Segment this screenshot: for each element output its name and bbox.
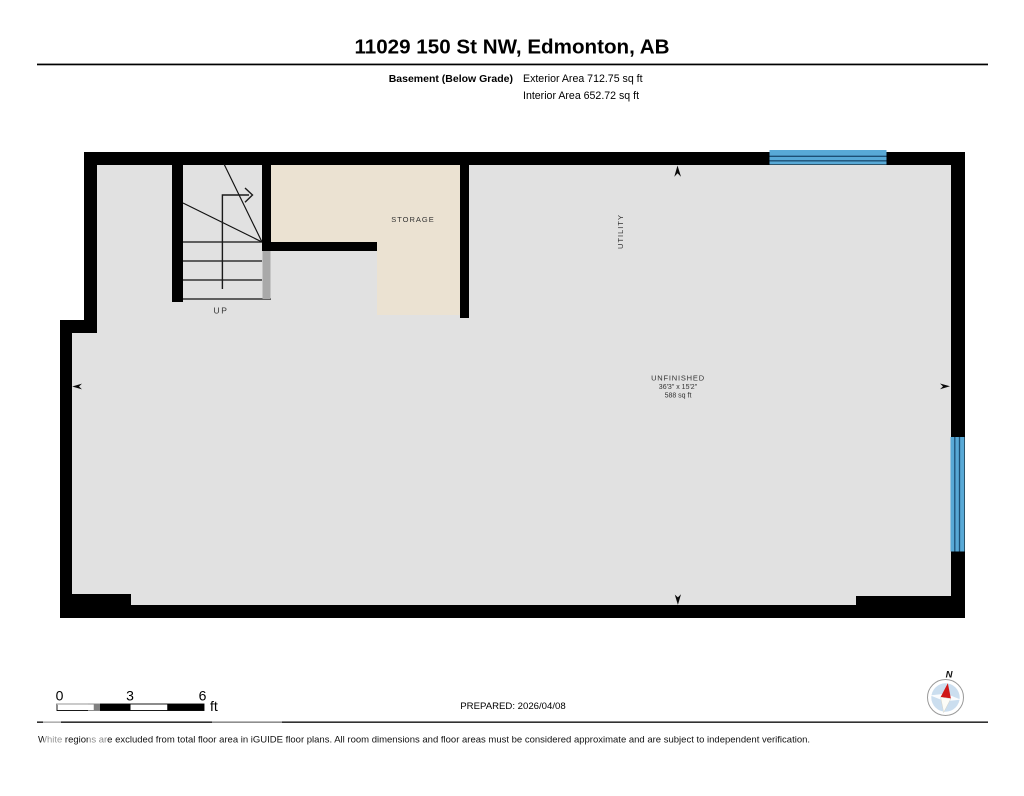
svg-text:UP: UP — [213, 306, 228, 316]
svg-text:36'3" x 15'2": 36'3" x 15'2" — [659, 384, 698, 391]
svg-text:588 sq ft: 588 sq ft — [665, 393, 692, 400]
svg-text:11029 150 St NW, Edmonton, AB: 11029 150 St NW, Edmonton, AB — [354, 36, 669, 59]
svg-text:STORAGE: STORAGE — [391, 215, 435, 224]
svg-text:White regions are excluded fro: White regions are excluded from total fl… — [38, 735, 810, 746]
svg-text:N: N — [946, 670, 954, 681]
svg-text:PREPARED: 2026/04/08: PREPARED: 2026/04/08 — [460, 701, 565, 712]
svg-text:UNFINISHED: UNFINISHED — [651, 374, 705, 383]
svg-text:UTILITY: UTILITY — [616, 214, 625, 249]
svg-text:6: 6 — [199, 688, 207, 704]
svg-text:ft: ft — [210, 698, 218, 714]
svg-text:Basement (Below Grade): Basement (Below Grade) — [389, 73, 513, 85]
svg-text:Interior Area 652.72 sq ft: Interior Area 652.72 sq ft — [523, 90, 639, 102]
svg-text:0: 0 — [56, 688, 64, 704]
svg-text:Exterior Area 712.75 sq ft: Exterior Area 712.75 sq ft — [523, 73, 643, 85]
svg-text:3: 3 — [126, 688, 134, 704]
